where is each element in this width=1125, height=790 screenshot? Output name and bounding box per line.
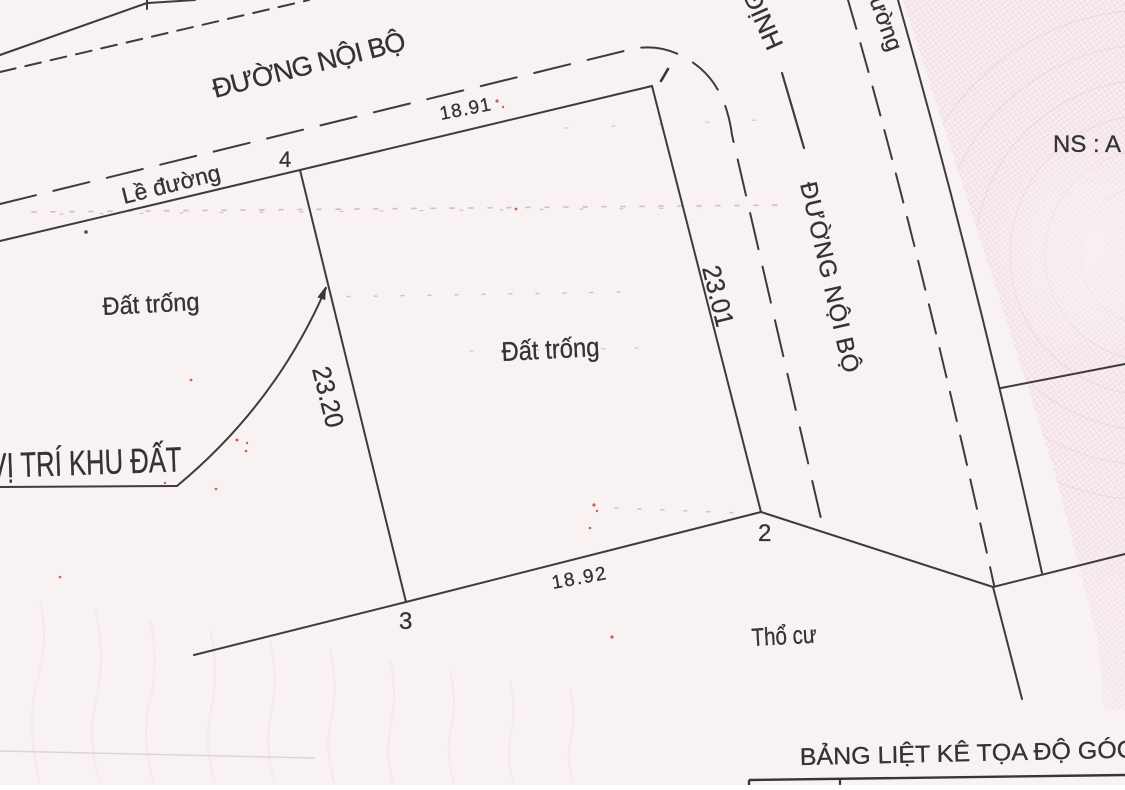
svg-text:NS : A S: NS : A S (1053, 131, 1125, 158)
svg-text:2: 2 (758, 520, 771, 547)
svg-text:Thổ cư: Thổ cư (751, 621, 817, 652)
svg-text:Đất trống: Đất trống (102, 288, 200, 321)
svg-text:Đất trống: Đất trống (501, 332, 600, 367)
svg-text:3: 3 (399, 608, 412, 635)
svg-text:4: 4 (279, 147, 291, 172)
svg-text:VỊ TRÍ KHU ĐẤT: VỊ TRÍ KHU ĐẤT (0, 439, 182, 486)
